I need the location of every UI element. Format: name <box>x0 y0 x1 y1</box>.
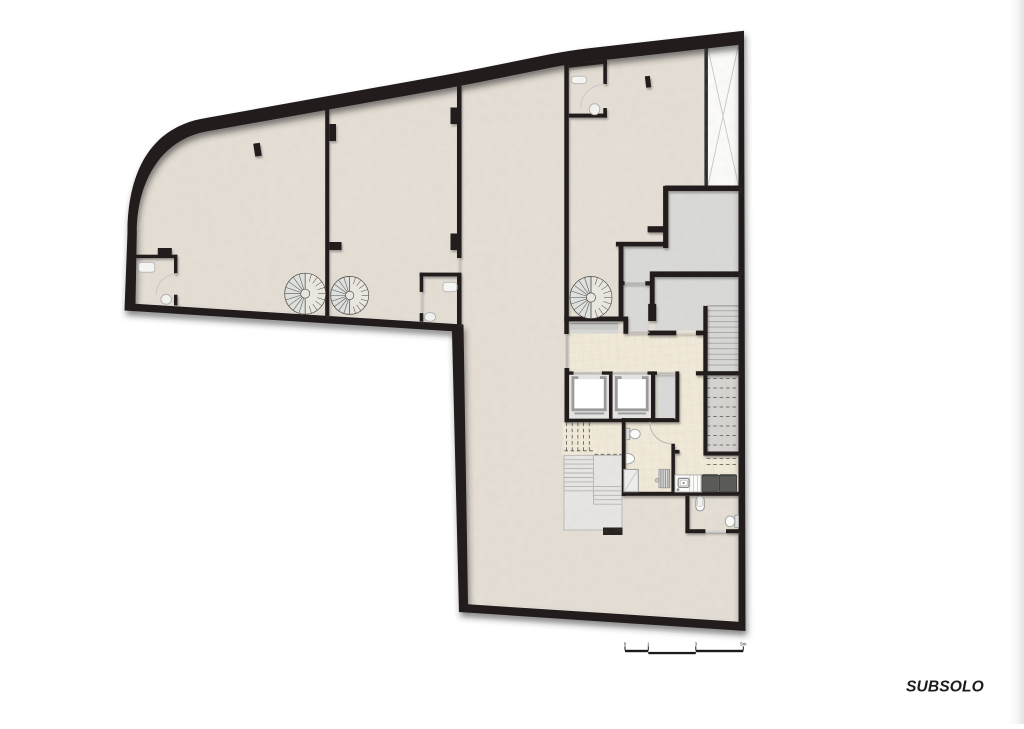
svg-text:0: 0 <box>624 642 627 647</box>
svg-text:SUBSOLO: SUBSOLO <box>906 679 984 696</box>
svg-text:3: 3 <box>695 642 698 647</box>
svg-text:5m: 5m <box>740 642 747 647</box>
svg-text:1: 1 <box>647 642 650 647</box>
